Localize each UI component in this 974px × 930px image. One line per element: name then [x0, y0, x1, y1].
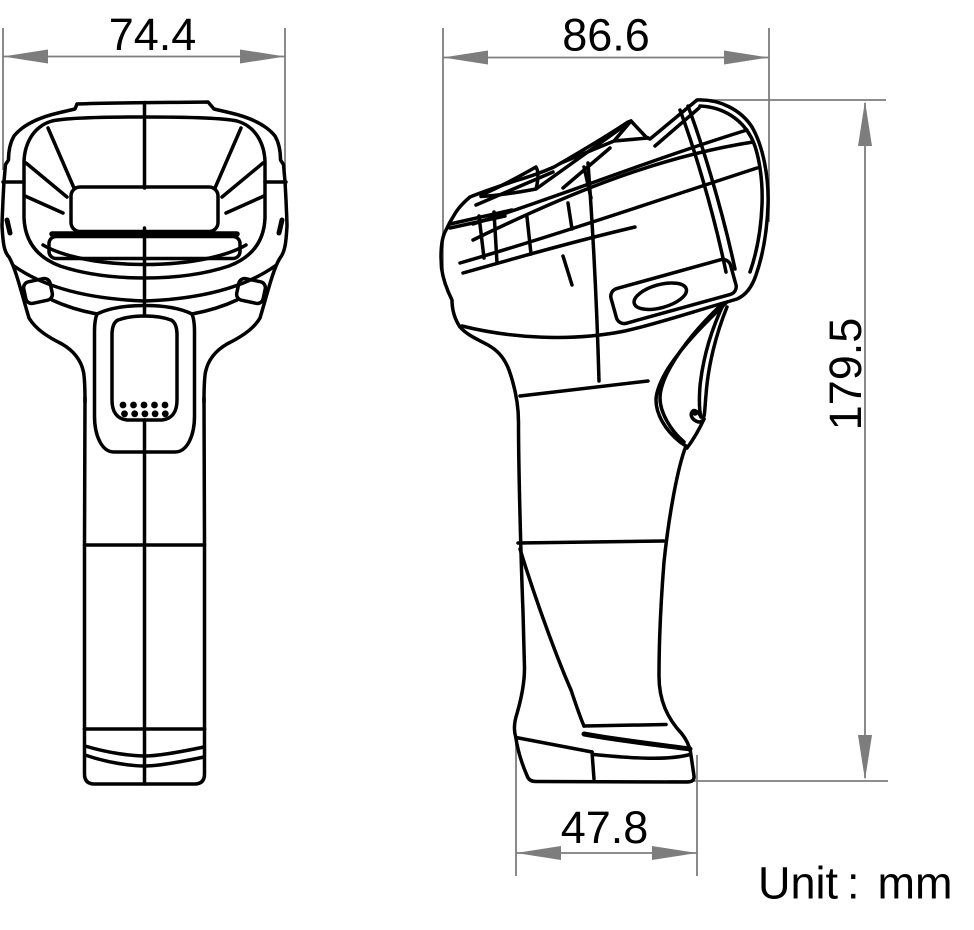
svg-text:Unit:mm: Unit:mm [758, 858, 953, 909]
svg-text:47.8: 47.8 [561, 802, 649, 853]
svg-text:86.6: 86.6 [562, 10, 650, 61]
svg-text:179.5: 179.5 [820, 318, 871, 431]
svg-text:74.4: 74.4 [109, 9, 197, 60]
